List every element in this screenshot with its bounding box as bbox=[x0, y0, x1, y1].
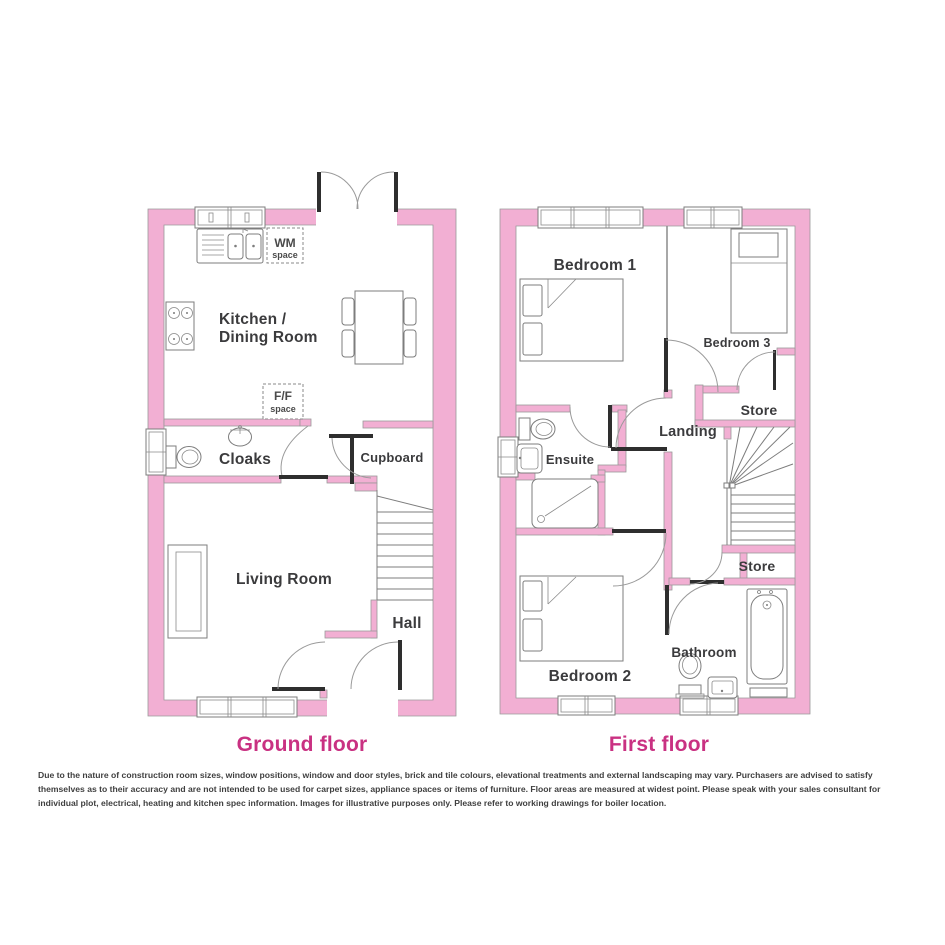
bathroom-label: Bathroom bbox=[671, 645, 736, 660]
ground-floor-title: Ground floor bbox=[237, 733, 368, 757]
kitchen-label-line1: Kitchen / bbox=[219, 311, 287, 328]
first-stairs bbox=[724, 427, 795, 545]
bedroom3-bed bbox=[731, 229, 787, 333]
ff-space-label-1: F/F bbox=[274, 389, 292, 403]
bedroom1-bed bbox=[520, 279, 623, 361]
cloaks-label: Cloaks bbox=[219, 451, 271, 468]
front-door-opening bbox=[327, 698, 398, 718]
fridge-freezer-space: F/F space bbox=[263, 384, 303, 419]
bathroom-basin bbox=[708, 677, 737, 698]
cupboard-label: Cupboard bbox=[361, 450, 424, 465]
ground-floor-plan: WM space F/F space bbox=[146, 172, 456, 718]
washing-machine-space: WM space bbox=[267, 228, 303, 263]
floorplan-page: WM space F/F space bbox=[0, 0, 945, 945]
sofa bbox=[168, 545, 207, 638]
cloaks-toilet bbox=[166, 446, 201, 468]
wm-space-label-2: space bbox=[272, 250, 298, 260]
bedroom2-window bbox=[558, 696, 615, 715]
cloaks-basin bbox=[229, 426, 252, 447]
bedroom1-label: Bedroom 1 bbox=[554, 257, 637, 274]
kitchen-sink bbox=[197, 229, 263, 263]
bath bbox=[747, 589, 787, 684]
disclaimer-text: Due to the nature of construction room s… bbox=[38, 769, 910, 810]
wm-space-label-1: WM bbox=[274, 236, 295, 250]
bedroom2-label: Bedroom 2 bbox=[549, 668, 632, 685]
bathroom-shelf bbox=[750, 688, 787, 697]
dining-table bbox=[342, 291, 416, 364]
first-floor-plan: Bedroom 1 Bedroom 3 Landing Store Ensuit… bbox=[498, 207, 810, 715]
landing-label: Landing bbox=[659, 424, 717, 440]
store-lower-label: Store bbox=[739, 558, 776, 574]
french-door-opening bbox=[316, 207, 397, 227]
first-floor-title: First floor bbox=[609, 733, 709, 757]
ensuite-basin bbox=[517, 444, 542, 473]
first-interior-walls bbox=[516, 348, 795, 590]
kitchen-label-line2: Dining Room bbox=[219, 329, 318, 346]
kitchen-window bbox=[195, 207, 265, 228]
french-doors bbox=[317, 172, 398, 212]
bathroom-toilet bbox=[676, 654, 704, 699]
hall-label: Hall bbox=[392, 615, 421, 632]
bedroom3-label: Bedroom 3 bbox=[703, 336, 770, 350]
living-room-label: Living Room bbox=[236, 571, 332, 588]
ground-stairs bbox=[377, 490, 433, 600]
ensuite-label: Ensuite bbox=[546, 452, 594, 467]
bedroom2-bed bbox=[520, 576, 623, 661]
ground-doors bbox=[272, 426, 402, 691]
ff-space-label-2: space bbox=[270, 404, 296, 414]
ensuite-toilet bbox=[519, 418, 555, 440]
ensuite-window bbox=[498, 437, 518, 477]
shower bbox=[532, 479, 598, 528]
bedroom3-window bbox=[684, 207, 742, 228]
cloaks-window bbox=[146, 429, 166, 475]
bathroom-window bbox=[680, 696, 738, 715]
store-upper-label: Store bbox=[741, 402, 778, 418]
bedroom1-window bbox=[538, 207, 643, 228]
hob bbox=[166, 302, 194, 350]
living-room-window bbox=[197, 697, 297, 717]
